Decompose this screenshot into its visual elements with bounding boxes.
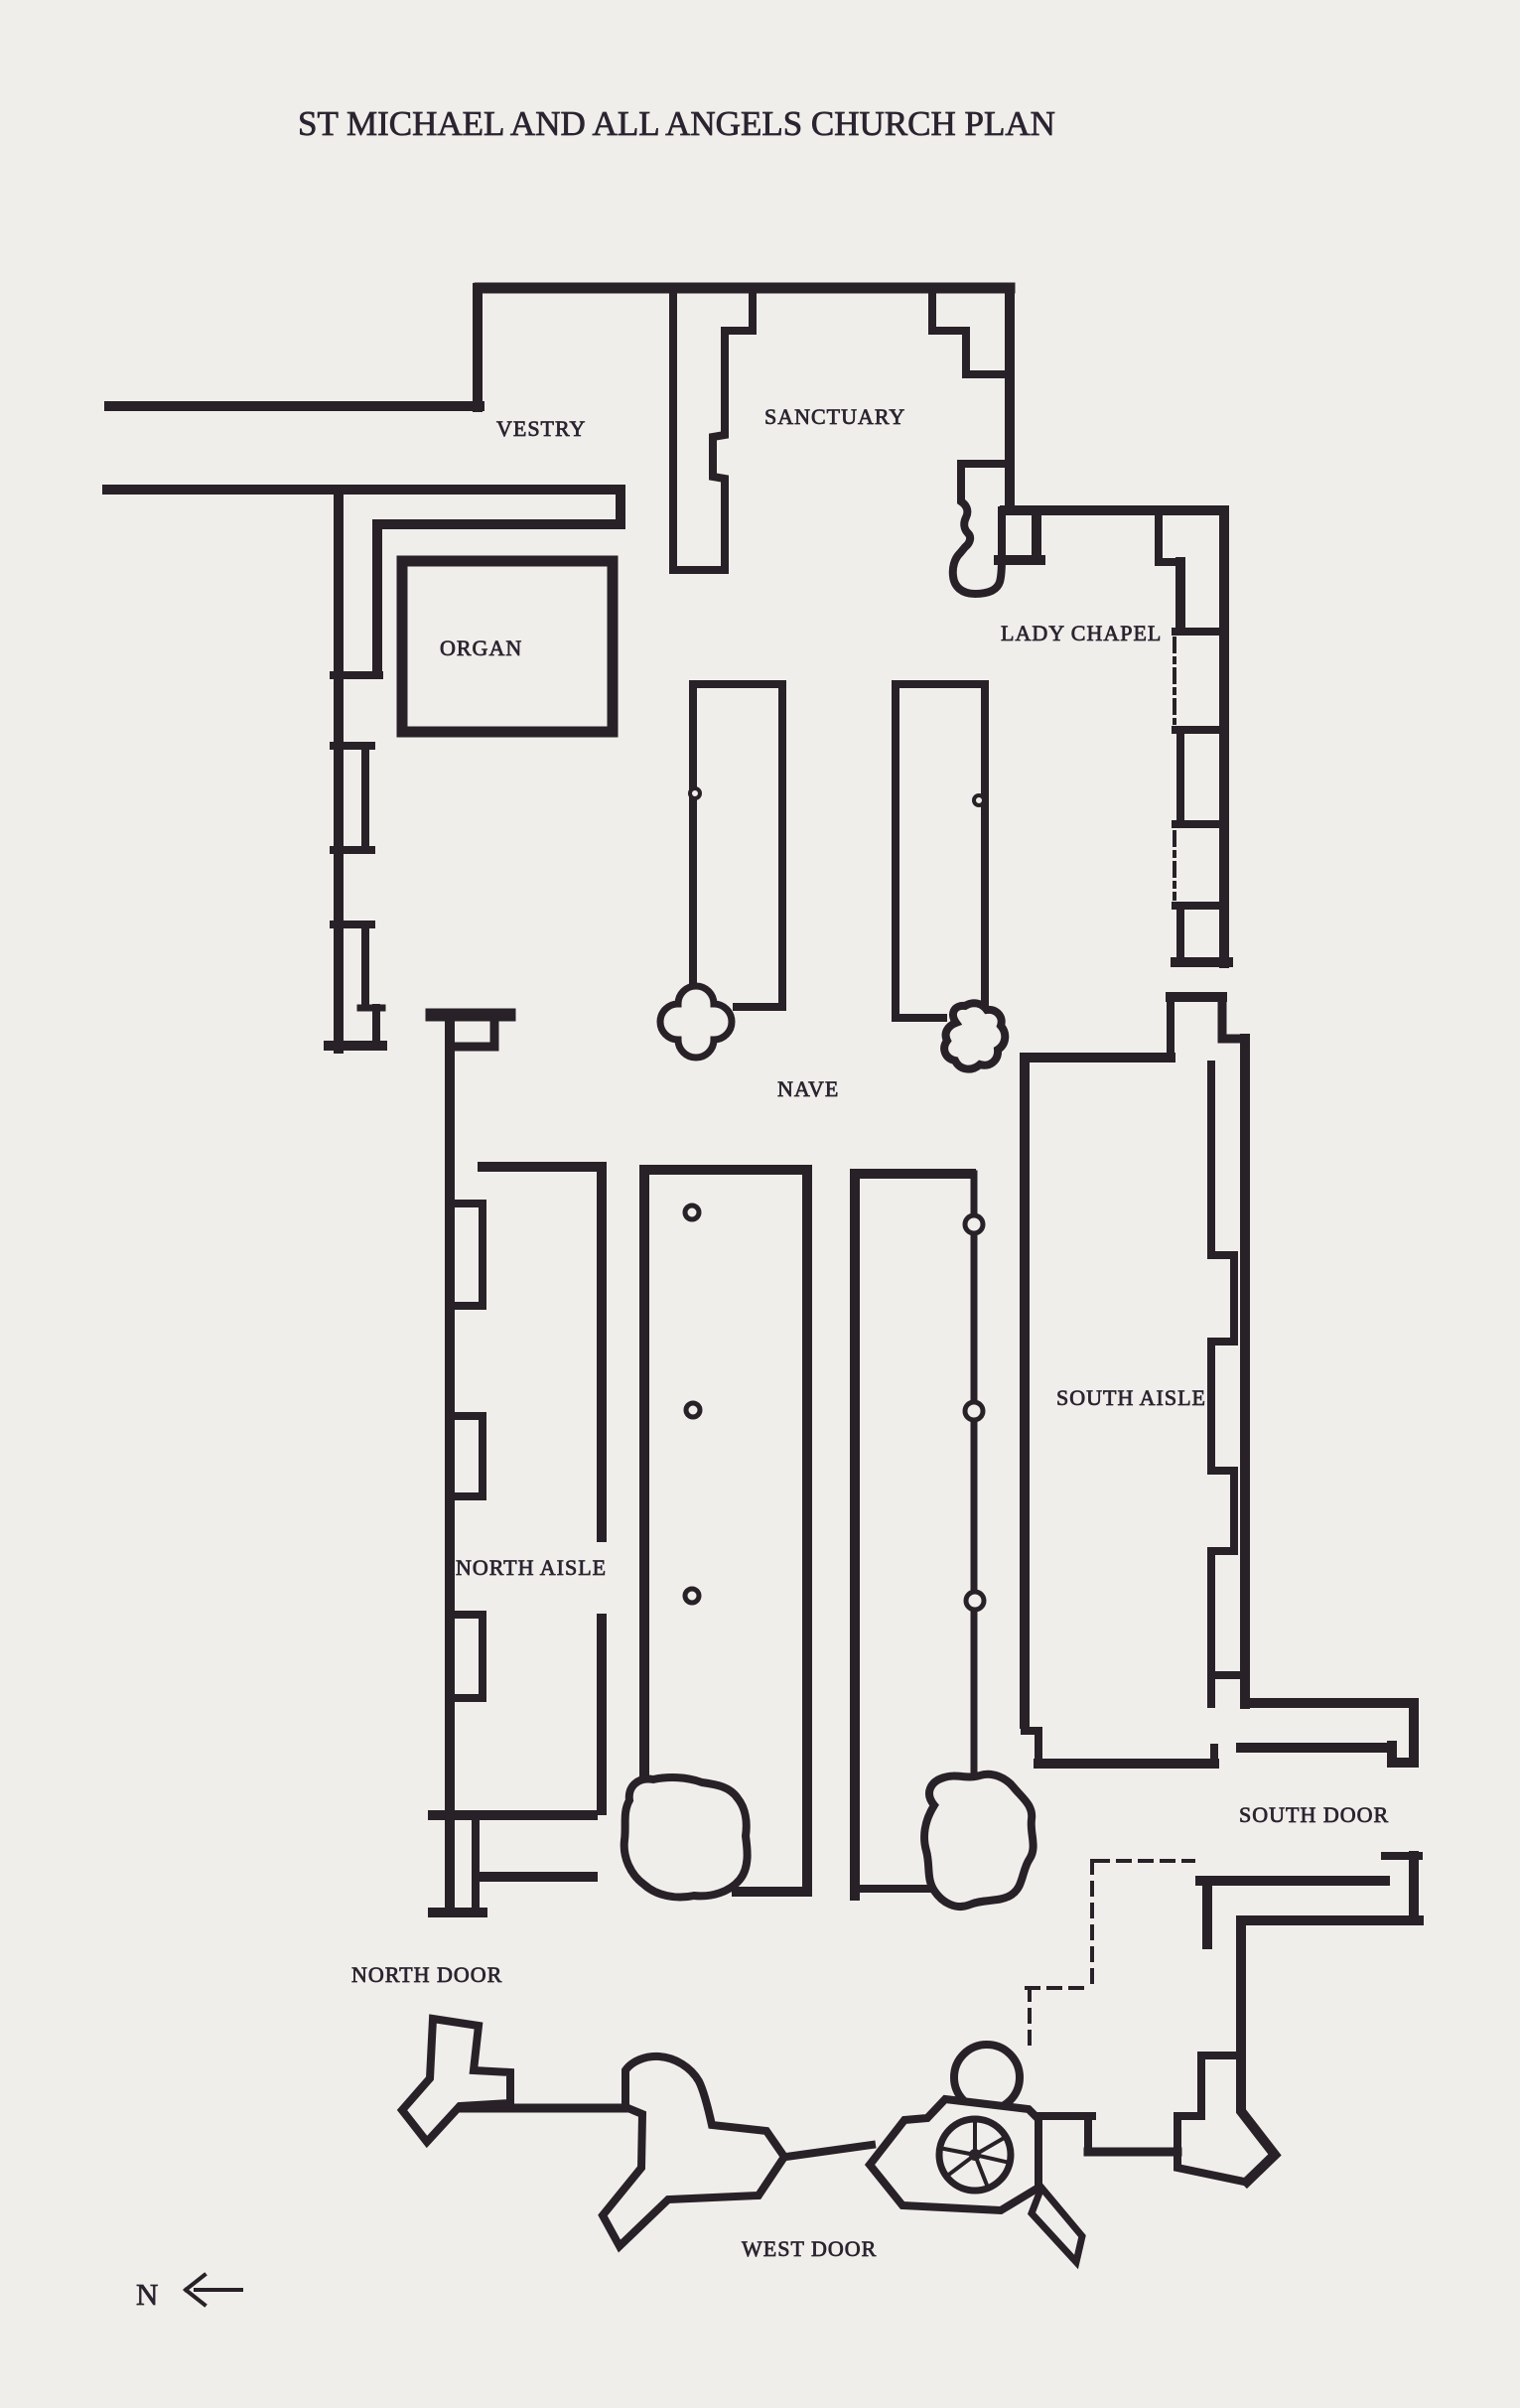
svg-text:SOUTH DOOR: SOUTH DOOR <box>1239 1802 1389 1827</box>
svg-text:SANCTUARY: SANCTUARY <box>764 404 905 429</box>
svg-text:ORGAN: ORGAN <box>440 636 522 660</box>
svg-text:WEST DOOR: WEST DOOR <box>742 2236 877 2261</box>
svg-text:LADY CHAPEL: LADY CHAPEL <box>1001 621 1162 645</box>
svg-text:NAVE: NAVE <box>777 1076 839 1101</box>
svg-text:VESTRY: VESTRY <box>496 416 586 441</box>
svg-text:NORTH AISLE: NORTH AISLE <box>456 1555 607 1580</box>
svg-text:N: N <box>136 2277 158 2312</box>
svg-text:NORTH DOOR: NORTH DOOR <box>351 1962 502 1987</box>
svg-text:ST MICHAEL AND ALL ANGELS CHUR: ST MICHAEL AND ALL ANGELS CHURCH PLAN <box>298 104 1055 143</box>
svg-text:SOUTH AISLE: SOUTH AISLE <box>1056 1385 1206 1410</box>
